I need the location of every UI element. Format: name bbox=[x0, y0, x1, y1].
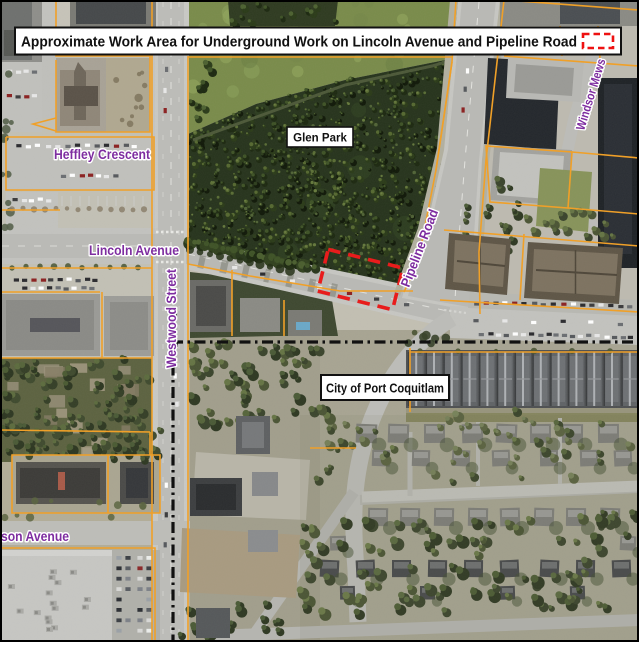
svg-text:Approximate Work Area for Unde: Approximate Work Area for Underground Wo… bbox=[21, 35, 577, 51]
svg-text:son Avenue: son Avenue bbox=[1, 529, 69, 544]
svg-text:Glen Park: Glen Park bbox=[293, 133, 347, 145]
svg-text:Lincoln Avenue: Lincoln Avenue bbox=[89, 243, 179, 258]
svg-text:Westwood Street: Westwood Street bbox=[164, 269, 179, 368]
svg-text:Heffley Crescent: Heffley Crescent bbox=[54, 147, 150, 162]
svg-text:City of Port Coquitlam: City of Port Coquitlam bbox=[326, 382, 444, 396]
